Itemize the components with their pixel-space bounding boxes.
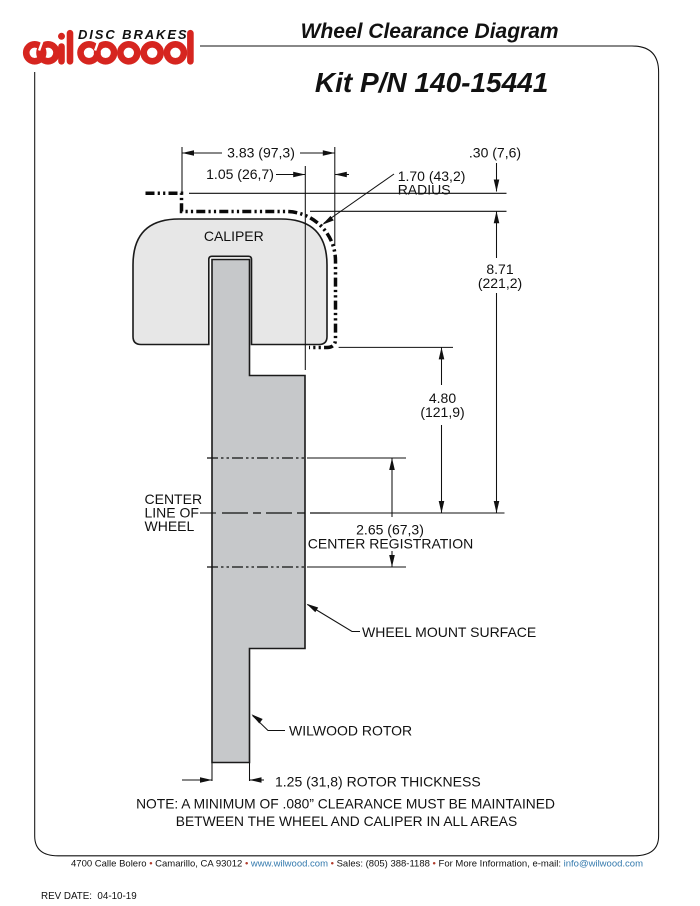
svg-text:.30 (7,6): .30 (7,6): [469, 145, 521, 161]
svg-text:WHEEL: WHEEL: [145, 518, 195, 534]
svg-text:(121,9): (121,9): [420, 404, 464, 420]
svg-text:1.25 (31,8) ROTOR THICKNESS: 1.25 (31,8) ROTOR THICKNESS: [275, 774, 481, 790]
svg-text:BETWEEN THE WHEEL AND CALIPER: BETWEEN THE WHEEL AND CALIPER IN ALL ARE…: [176, 814, 517, 829]
svg-text:RADIUS: RADIUS: [398, 182, 451, 198]
svg-text:3.83 (97,3): 3.83 (97,3): [227, 145, 295, 161]
svg-text:WILWOOD ROTOR: WILWOOD ROTOR: [289, 723, 412, 739]
svg-text:NOTE: A MINIMUM OF .080” CLEAR: NOTE: A MINIMUM OF .080” CLEARANCE MUST …: [136, 797, 555, 812]
svg-text:4700 Calle Bolero • Camarillo,: 4700 Calle Bolero • Camarillo, CA 93012 …: [71, 859, 643, 870]
svg-text:WHEEL MOUNT SURFACE: WHEEL MOUNT SURFACE: [362, 624, 536, 640]
svg-text:DISC BRAKES: DISC BRAKES: [78, 27, 188, 42]
svg-text:(221,2): (221,2): [478, 275, 522, 291]
svg-text:Kit P/N 140-15441: Kit P/N 140-15441: [315, 67, 548, 98]
svg-text:CENTER REGISTRATION: CENTER REGISTRATION: [308, 536, 473, 552]
svg-text:CALIPER: CALIPER: [204, 228, 264, 244]
svg-text:1.05 (26,7): 1.05 (26,7): [206, 166, 274, 182]
svg-text:REV DATE: 04-10-19: REV DATE: 04-10-19: [41, 891, 137, 902]
svg-text:Wheel Clearance Diagram: Wheel Clearance Diagram: [301, 20, 559, 43]
